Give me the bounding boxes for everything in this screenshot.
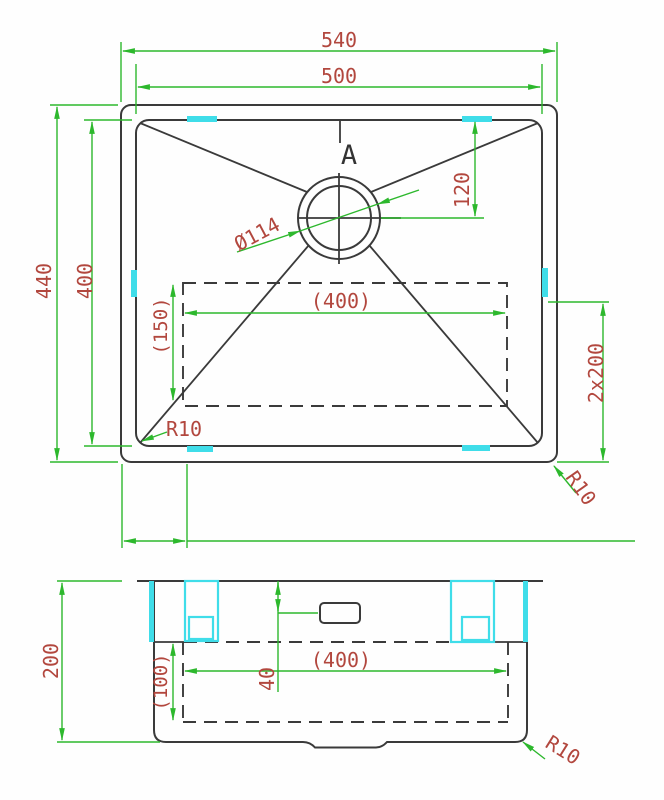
- top-view: 540 500 440 400 120 Ø114 A (400) (150): [32, 28, 635, 548]
- dim-500-label: 500: [321, 64, 357, 88]
- radius-inner-label: R10: [166, 417, 202, 441]
- slope-line-bottom-right: [369, 245, 538, 443]
- clip-highlight-bottom-right: [462, 445, 490, 451]
- dim-2x200-label: 2x200: [584, 343, 608, 403]
- wall-highlight-left: [149, 581, 154, 642]
- wall-highlight-right: [523, 581, 528, 642]
- clip-highlight-left: [131, 270, 137, 297]
- side-view: 200 (100) (400) 40 R10: [39, 581, 585, 770]
- dim-40-label: 40: [255, 667, 279, 691]
- cad-drawing-sheet: 540 500 440 400 120 Ø114 A (400) (150): [0, 0, 664, 800]
- dim-440-label: 440: [32, 263, 56, 299]
- dim-base-depth-label: (100): [150, 653, 172, 710]
- dim-120-label: 120: [450, 172, 474, 208]
- slope-line-top-left: [140, 123, 307, 192]
- clip-highlight-bottom-left: [187, 446, 213, 452]
- clip-highlight-right: [542, 268, 548, 297]
- dim-diameter-leader-right: [378, 190, 419, 204]
- dim-diameter-label: Ø114: [230, 212, 284, 256]
- dim-side-base-width-label: (400): [311, 648, 371, 672]
- dim-200-label: 200: [39, 643, 63, 679]
- dim-base-width-label: (400): [311, 289, 371, 313]
- dim-540-label: 540: [321, 28, 357, 52]
- mounting-clip-right-foot: [462, 617, 489, 640]
- sink-drawing-canvas: 540 500 440 400 120 Ø114 A (400) (150): [0, 0, 664, 800]
- radius-side-label: R10: [541, 730, 584, 769]
- overflow-hole-outline: [320, 603, 360, 623]
- section-marker-label: A: [341, 140, 357, 171]
- clip-highlight-top-left: [187, 116, 217, 122]
- dim-base-height-label: (150): [150, 297, 172, 354]
- dim-400-label: 400: [73, 263, 97, 299]
- radius-outer-label: R10: [561, 466, 601, 509]
- clip-highlight-top-right: [462, 116, 492, 122]
- mounting-clip-left-foot: [189, 617, 213, 639]
- mounting-clip-right: [451, 581, 494, 642]
